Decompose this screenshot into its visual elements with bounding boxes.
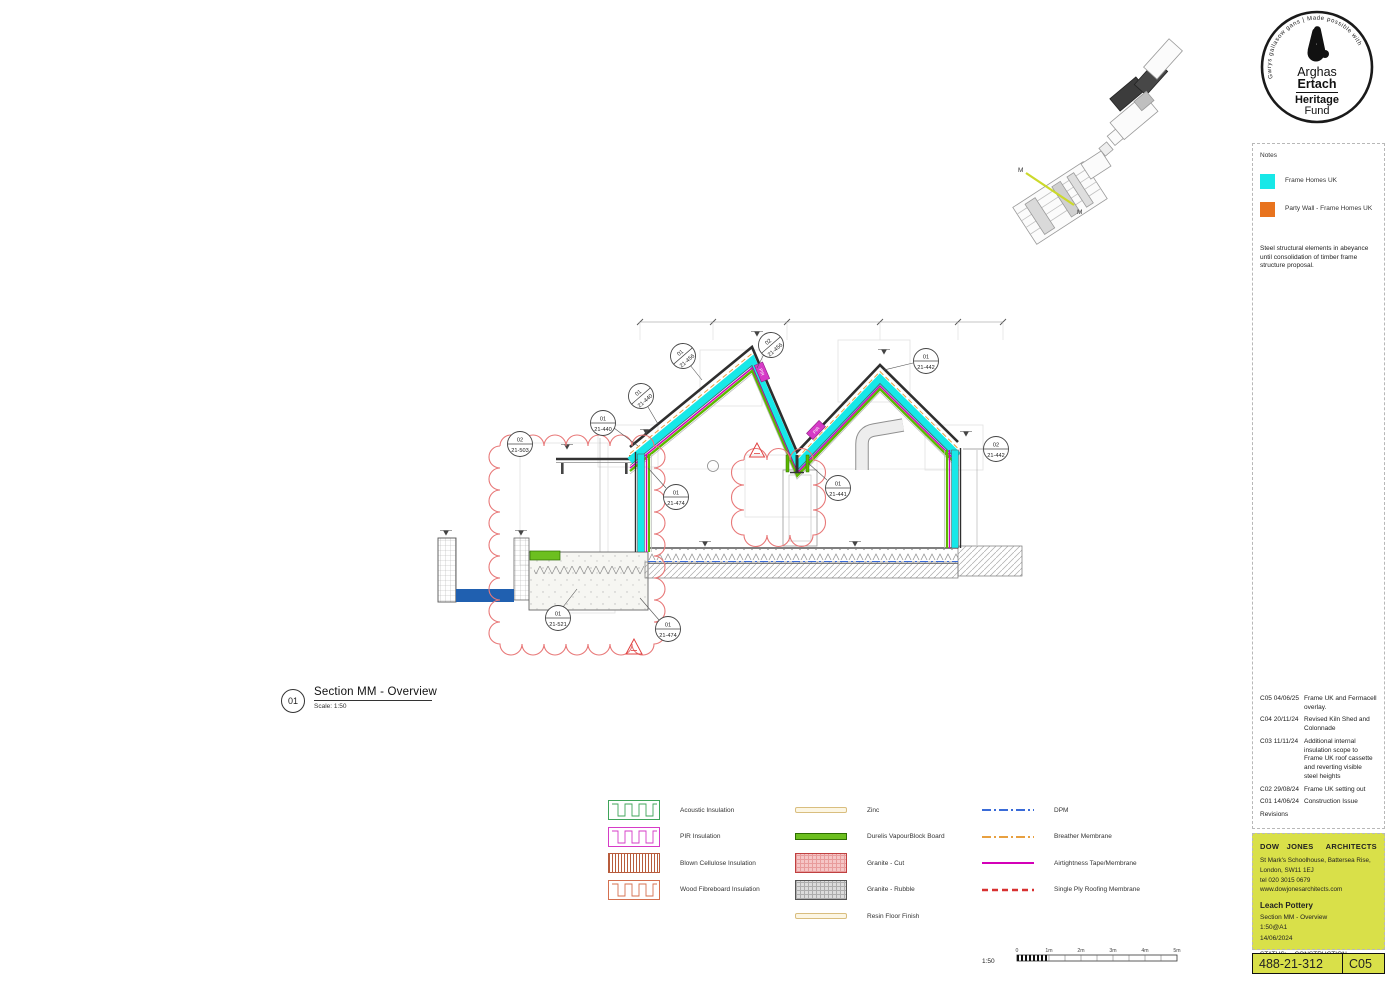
granite-pier: [514, 538, 529, 600]
callout-21-474: 01 21-474: [656, 617, 681, 642]
revision-row: C02 29/08/24 Frame UK setting out: [1260, 786, 1377, 795]
svg-text:21-521: 21-521: [549, 622, 566, 628]
callout-21-442: 02 21-442: [984, 437, 1009, 462]
svg-text:21-441: 21-441: [829, 492, 846, 498]
frame-homes-uk-wall: [638, 454, 645, 552]
legend-column-boards: Zinc Durelis VapourBlock Board Granite -…: [795, 797, 982, 930]
svg-text:01: 01: [923, 355, 929, 361]
legend-item: Granite - Cut: [795, 850, 982, 877]
section-drawing: PIR PIR: [420, 300, 1050, 695]
svg-text:21-503: 21-503: [511, 448, 528, 454]
firm-name: DOW JONES ARCHITECTS: [1260, 841, 1377, 853]
svg-text:2m: 2m: [1077, 948, 1084, 954]
door: [783, 470, 817, 546]
section-marker-m: M: [1077, 209, 1082, 216]
legend-frame-homes-uk: Frame Homes UK: [1260, 174, 1377, 189]
legend-column-insulation: Acoustic Insulation PIR Insulation Blown…: [608, 797, 795, 930]
legend-item: Blown Cellulose Insulation: [608, 850, 795, 877]
section-marker-m: M: [1018, 167, 1023, 174]
single-ply-swatch: [982, 887, 1034, 893]
breather-membrane-swatch: [982, 834, 1034, 840]
revision-cloud-valley: [732, 449, 826, 547]
pir-insulation-swatch: [608, 827, 660, 847]
svg-text:4m: 4m: [1141, 948, 1148, 954]
circular-fixture: [708, 461, 719, 472]
granite-cut-swatch: [795, 853, 847, 873]
colonnade-canopy: [556, 455, 633, 474]
legend-item: Zinc: [795, 797, 982, 824]
underslab-insulation: [534, 566, 644, 577]
section-title: Section MM - Overview: [314, 686, 437, 698]
legend-item: DPM: [982, 797, 1162, 824]
revision-row: C03 11/11/24 Additional internal insulat…: [1260, 738, 1377, 782]
callout-21-503: 02 21-503: [508, 432, 533, 457]
svg-text:01: 01: [835, 482, 841, 488]
drawing-sheet: Gwrys gallasow gans | Made possible with…: [0, 0, 1400, 988]
svg-text:5m: 5m: [1173, 948, 1180, 954]
scale-bar: 1:50 0 1m 2m 3m 4m 5m: [982, 945, 1187, 969]
revisions-table: C05 04/06/25 Frame UK and Fermacell over…: [1260, 695, 1377, 820]
svg-text:02: 02: [993, 443, 999, 449]
svg-text:0: 0: [1015, 948, 1018, 954]
notes-body-text: Steel structural elements in abeyance un…: [1260, 245, 1378, 271]
svg-text:01: 01: [665, 623, 671, 629]
water-leat: [456, 589, 514, 602]
materials-legend: Acoustic Insulation PIR Insulation Blown…: [608, 797, 1168, 930]
scale-bar-graphic: 0 1m 2m 3m 4m 5m: [1009, 945, 1187, 969]
durelis-post: [786, 455, 789, 472]
legend-item: Granite - Rubble: [795, 877, 982, 904]
callout-21-440: 01 21-440: [623, 378, 658, 413]
callout-21-441: 01 21-441: [826, 476, 851, 501]
svg-text:21-474: 21-474: [659, 633, 676, 639]
notes-panel: Notes Frame Homes UK Party Wall - Frame …: [1252, 143, 1385, 829]
orange-swatch: [1260, 202, 1275, 217]
foundations: [438, 538, 1022, 610]
svg-text:02: 02: [517, 438, 523, 444]
floor-insulation: [648, 549, 958, 560]
svg-text:1m: 1m: [1045, 948, 1052, 954]
callout-21-521: 01 21-521: [546, 606, 571, 631]
svg-text:21-442: 21-442: [917, 365, 934, 371]
legend-item: Acoustic Insulation: [608, 797, 795, 824]
key-plan: M M: [1000, 25, 1190, 268]
section-number-bubble: 01: [281, 689, 305, 713]
drawing-date: 14/06/2024: [1260, 934, 1377, 944]
section-title-block: 01 Section MM - Overview Scale: 1:50: [281, 686, 437, 713]
firm-website: www.dowjonesarchitects.com: [1260, 885, 1377, 895]
drawing-number-strip: 488-21-312 C05: [1252, 953, 1385, 974]
left-wall: [636, 452, 652, 552]
swatch-label: Party Wall - Frame Homes UK: [1285, 205, 1372, 214]
right-foundation: [958, 546, 1022, 576]
frame-homes-uk-wall: [952, 450, 959, 548]
legend-column-membranes: DPM Breather Membrane Airtightness Tape/…: [982, 797, 1162, 930]
revision-code: C05: [1343, 953, 1385, 974]
drawing-title: Section MM - Overview: [1260, 913, 1377, 923]
svg-text:21-474: 21-474: [667, 501, 684, 507]
svg-text:3m: 3m: [1109, 948, 1116, 954]
drawing-number: 488-21-312: [1252, 953, 1343, 974]
durelis-board-strip: [530, 551, 560, 560]
project-name: Leach Pottery: [1260, 900, 1377, 913]
svg-text:01: 01: [600, 417, 606, 423]
legend-item: Breather Membrane: [982, 824, 1162, 851]
legend-item: Airtightness Tape/Membrane: [982, 850, 1162, 877]
blown-cellulose-swatch: [608, 853, 660, 873]
title-block: DOW JONES ARCHITECTS St Mark's Schoolhou…: [1252, 833, 1385, 950]
section-scale: Scale: 1:50: [314, 703, 437, 710]
canopy-post: [561, 463, 564, 474]
callout-21-440: 01 21-440: [591, 411, 616, 436]
svg-text:01: 01: [673, 491, 679, 497]
drawing-scale: 1:50@A1: [1260, 923, 1377, 933]
svg-text:21-442: 21-442: [987, 453, 1004, 459]
logo-fund-2: Fund: [1304, 105, 1329, 117]
revisions-label: Revisions: [1260, 811, 1377, 820]
svg-text:01: 01: [555, 612, 561, 618]
callout-21-456: 01 21-456: [665, 338, 700, 373]
legend-item: Wood Fibreboard Insulation: [608, 877, 795, 904]
resin-floor-swatch: [795, 913, 847, 919]
callout-21-442: 01 21-442: [914, 349, 939, 374]
durelis-swatch: [795, 833, 847, 840]
firm-address: St Mark's Schoolhouse, Battersea Rise, L…: [1260, 856, 1377, 895]
right-wall: [945, 448, 961, 548]
legend-item: Single Ply Roofing Membrane: [982, 877, 1162, 904]
heritage-fund-logo: Gwrys gallasow gans | Made possible with…: [1256, 6, 1378, 128]
wood-fibreboard-swatch: [608, 880, 660, 900]
airtightness-swatch: [982, 860, 1034, 866]
revision-row: C04 20/11/24 Revised Kiln Shed and Colon…: [1260, 716, 1377, 734]
legend-item: Resin Floor Finish: [795, 903, 982, 930]
swatch-label: Frame Homes UK: [1285, 177, 1337, 186]
zinc-swatch: [795, 807, 847, 813]
legend-item: Durelis VapourBlock Board: [795, 824, 982, 851]
ground-hatch: [645, 562, 958, 578]
callout-21-474: 01 21-474: [664, 485, 689, 510]
acoustic-insulation-swatch: [608, 800, 660, 820]
scale-ratio: 1:50: [982, 958, 995, 965]
notes-title: Notes: [1260, 152, 1377, 161]
dpm-swatch: [982, 807, 1034, 813]
granite-rubble-swatch: [795, 880, 847, 900]
legend-item: PIR Insulation: [608, 824, 795, 851]
legend-party-wall: Party Wall - Frame Homes UK: [1260, 202, 1377, 217]
heritage-fund-logo-icon: Gwrys gallasow gans | Made possible with…: [1256, 6, 1378, 128]
svg-text:21-440: 21-440: [594, 427, 611, 433]
granite-rubble-wall: [438, 538, 456, 602]
title-underline: [314, 700, 432, 701]
revision-row: C05 04/06/25 Frame UK and Fermacell over…: [1260, 695, 1377, 713]
revision-row: C01 14/06/24 Construction Issue: [1260, 798, 1377, 807]
key-plan-buildings: [1013, 39, 1183, 244]
floor-buildup: [648, 548, 958, 564]
cyan-swatch: [1260, 174, 1275, 189]
canopy-post: [625, 463, 628, 474]
logo-name-2: Ertach: [1298, 77, 1337, 91]
dimension-line-top: [637, 319, 1006, 340]
